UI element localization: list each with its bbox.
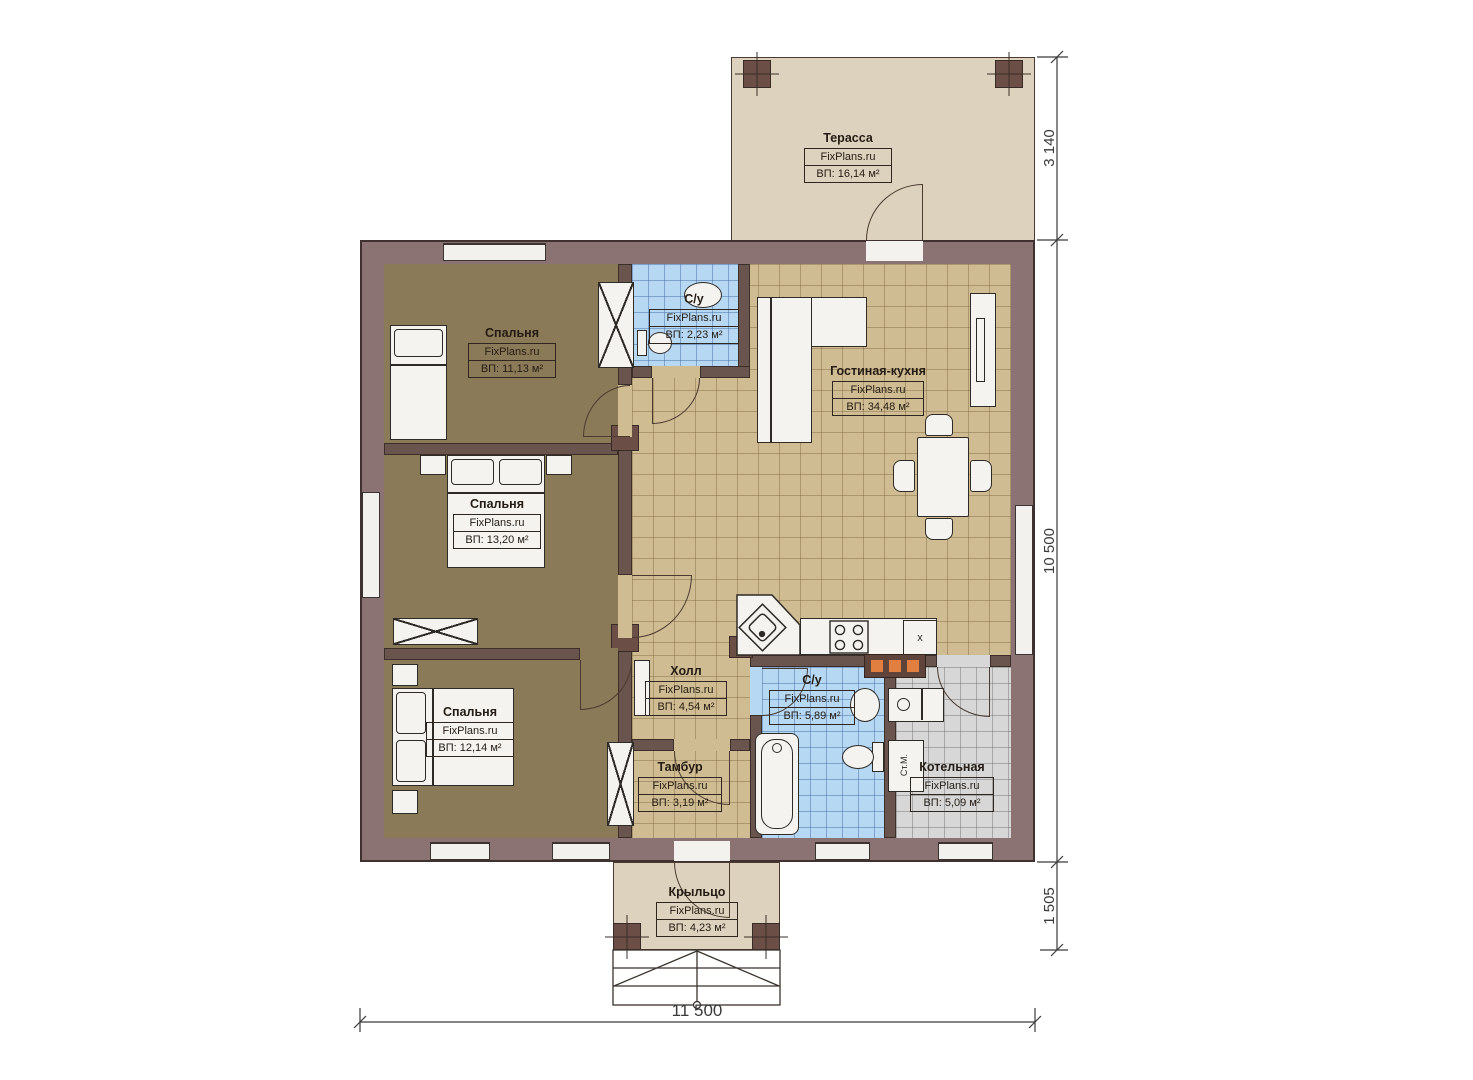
room-area: ВП: 34,48 м² [833, 398, 923, 415]
blanket-line [448, 492, 544, 494]
fridge-mark: x [917, 632, 923, 644]
wardrobe [393, 618, 478, 645]
island-tile [907, 660, 919, 672]
watermark-text: FixPlans.ru [833, 382, 923, 398]
watermark-text: FixPlans.ru [650, 310, 738, 326]
fridge-unit: x [903, 620, 937, 655]
room-label-box: FixPlans.ru ВП: 4,23 м² [656, 902, 738, 937]
bathtub-drain [772, 743, 782, 753]
pillow [394, 329, 443, 357]
room-label-box: FixPlans.ru ВП: 13,20 м² [453, 514, 541, 549]
door-threshold [750, 667, 762, 715]
column [729, 636, 753, 658]
room-name: С/у [639, 292, 749, 306]
wall [384, 443, 618, 455]
room-label-box: FixPlans.ru ВП: 4,54 м² [645, 681, 727, 716]
pillow [499, 459, 542, 485]
window [938, 842, 993, 860]
room-name: Спальня [410, 705, 530, 719]
door-threshold [580, 648, 618, 660]
room-label-hall: Холл FixPlans.ru ВП: 4,54 м² [636, 664, 736, 716]
terrace-post [995, 60, 1023, 88]
wall [384, 648, 580, 660]
blanket-line [391, 364, 446, 366]
island-tile [889, 660, 901, 672]
door-threshold [937, 655, 990, 667]
room-name: Котельная [897, 760, 1007, 774]
wall [990, 655, 1011, 667]
room-area: ВП: 4,54 м² [646, 698, 726, 715]
boiler-unit [888, 688, 944, 722]
nightstand [392, 664, 418, 686]
room-name: С/у [762, 673, 862, 687]
tv-screen [976, 318, 985, 382]
kitchen-island [864, 654, 926, 678]
room-area: ВП: 11,13 м² [469, 360, 555, 377]
terrace-door-opening [866, 241, 923, 261]
room-label-terrace: Терасса FixPlans.ru ВП: 16,14 м² [783, 131, 913, 183]
dim-terrace-depth: 3 140 [1041, 129, 1058, 167]
room-label-box: FixPlans.ru ВП: 34,48 м² [832, 381, 924, 416]
room-label-bath: С/у FixPlans.ru ВП: 5,89 м² [762, 673, 862, 725]
nightstand [546, 455, 572, 475]
nightstand [420, 455, 446, 475]
boiler-divider [921, 689, 923, 720]
window [430, 842, 490, 860]
chair [925, 518, 953, 540]
room-label-box: FixPlans.ru ВП: 12,14 м² [426, 722, 514, 757]
room-label-porch: Крыльцо FixPlans.ru ВП: 4,23 м² [647, 885, 747, 937]
room-area: ВП: 3,19 м² [639, 794, 721, 811]
watermark-text: FixPlans.ru [454, 515, 540, 531]
watermark-text: FixPlans.ru [639, 778, 721, 794]
watermark-text: FixPlans.ru [657, 903, 737, 919]
floor-plan: x Ст.М. Терасса FixPlans.ru ВП: 16,14 м²… [0, 0, 1473, 1080]
room-label-box: FixPlans.ru ВП: 3,19 м² [638, 777, 722, 812]
toilet-bowl [842, 745, 874, 769]
nightstand [392, 790, 418, 814]
wall [700, 366, 750, 378]
window [815, 842, 870, 860]
pillow [451, 459, 494, 485]
window [552, 842, 610, 860]
door-threshold [652, 366, 700, 378]
room-name: Гостиная-кухня [808, 364, 948, 378]
entry-door-opening [674, 841, 730, 861]
room-area: ВП: 16,14 м² [805, 165, 891, 182]
dim-porch-depth: 1 505 [1041, 887, 1058, 925]
room-label-bedroom3: Спальня FixPlans.ru ВП: 12,14 м² [410, 705, 530, 757]
watermark-text: FixPlans.ru [469, 344, 555, 360]
room-label-box: FixPlans.ru ВП: 11,13 м² [468, 343, 556, 378]
dim-house-depth: 10 500 [1041, 528, 1058, 574]
window [1015, 505, 1033, 655]
terrace-post [743, 60, 771, 88]
room-name: Спальня [452, 326, 572, 340]
room-name: Спальня [437, 497, 557, 511]
room-area: ВП: 4,23 м² [657, 919, 737, 936]
porch-post [613, 923, 641, 950]
room-label-bedroom2: Спальня FixPlans.ru ВП: 13,20 м² [437, 497, 557, 549]
wall [632, 739, 674, 751]
room-label-box: FixPlans.ru ВП: 16,14 м² [804, 148, 892, 183]
chair [893, 460, 915, 492]
room-label-box: FixPlans.ru ВП: 5,89 м² [769, 690, 855, 725]
window [362, 492, 380, 598]
room-label-box: FixPlans.ru ВП: 5,09 м² [910, 777, 994, 812]
porch-post [752, 923, 780, 950]
door-threshold [674, 739, 730, 751]
sofa-line [770, 298, 772, 442]
watermark-text: FixPlans.ru [770, 691, 854, 707]
room-label-boiler: Котельная FixPlans.ru ВП: 5,09 м² [897, 760, 1007, 812]
wall [632, 366, 652, 378]
wall [730, 739, 750, 751]
watermark-text: FixPlans.ru [911, 778, 993, 794]
room-name: Терасса [783, 131, 913, 145]
window [443, 243, 546, 261]
door-threshold [618, 575, 632, 638]
room-label-tambour: Тамбур FixPlans.ru ВП: 3,19 м² [630, 760, 730, 812]
room-area: ВП: 2,23 м² [650, 326, 738, 343]
watermark-text: FixPlans.ru [646, 682, 726, 698]
dim-house-width: 11 500 [672, 1001, 723, 1020]
boiler-dial [897, 698, 910, 711]
chair [925, 414, 953, 436]
wardrobe [598, 282, 634, 368]
wall [618, 437, 632, 575]
watermark-text: FixPlans.ru [805, 149, 891, 165]
room-name: Тамбур [630, 760, 730, 774]
sofa [757, 297, 812, 443]
room-label-wc-top: С/у FixPlans.ru ВП: 2,23 м² [639, 292, 749, 344]
room-area: ВП: 5,09 м² [911, 794, 993, 811]
room-name: Холл [636, 664, 736, 678]
chair [970, 460, 992, 492]
room-label-living: Гостиная-кухня FixPlans.ru ВП: 34,48 м² [808, 364, 948, 416]
room-label-box: FixPlans.ru ВП: 2,23 м² [649, 309, 739, 344]
room-area: ВП: 12,14 м² [427, 739, 513, 756]
room-label-bedroom1: Спальня FixPlans.ru ВП: 11,13 м² [452, 326, 572, 378]
watermark-text: FixPlans.ru [427, 723, 513, 739]
room-name: Крыльцо [647, 885, 747, 899]
island-tile [871, 660, 883, 672]
room-area: ВП: 5,89 м² [770, 707, 854, 724]
room-area: ВП: 13,20 м² [454, 531, 540, 548]
dining-table [917, 437, 969, 517]
